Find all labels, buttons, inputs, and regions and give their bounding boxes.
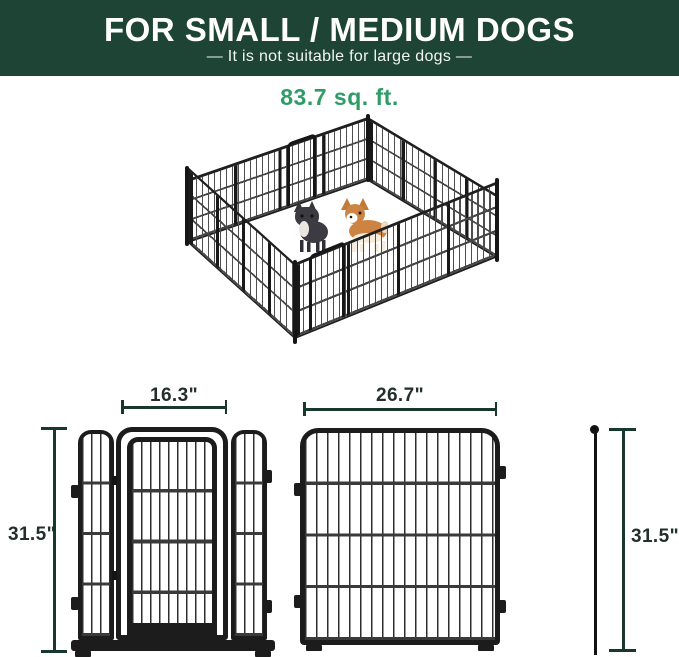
ground-stake-top	[590, 425, 599, 434]
page-title: FOR SMALL / MEDIUM DOGS	[104, 13, 575, 46]
ground-stake	[594, 430, 597, 655]
area-size-label: 83.7 sq. ft.	[0, 84, 679, 111]
connector-tab	[294, 483, 302, 496]
dimension-line	[303, 408, 497, 411]
panel-foot	[255, 651, 271, 657]
door-side-panel-right	[231, 430, 267, 640]
door-gate	[127, 437, 217, 635]
dimension-cap	[41, 427, 67, 430]
connector-tab	[264, 600, 272, 613]
regular-panel-width-label: 26.7"	[350, 385, 450, 407]
door-hinge	[112, 476, 117, 485]
dimension-cap	[41, 650, 67, 653]
panel-foot	[478, 645, 494, 651]
fence-corner-post-left	[185, 166, 189, 246]
fence-corner-post-front	[293, 260, 297, 344]
connector-tab	[294, 595, 302, 608]
connector-tab	[264, 470, 272, 483]
fence-wall-front-left	[188, 167, 296, 340]
door-hinge	[112, 571, 117, 580]
corgi-icon	[341, 198, 388, 252]
connector-tab	[498, 466, 506, 479]
fence-door-back	[287, 133, 315, 207]
fence-wall-back-right	[368, 117, 499, 260]
dimension-cap	[495, 402, 498, 416]
french-bulldog-icon	[294, 201, 328, 252]
dimension-cap	[121, 400, 124, 414]
header-banner: FOR SMALL / MEDIUM DOGS — It is not suit…	[0, 0, 679, 76]
door-panel-height-label: 31.5"	[8, 524, 50, 546]
regular-panel	[300, 428, 500, 645]
panel-foot	[306, 645, 322, 651]
dimension-line	[622, 430, 625, 651]
dimension-cap	[609, 428, 636, 431]
regular-panel-height-label: 31.5"	[631, 526, 679, 548]
connector-tab	[498, 600, 506, 613]
fence-door-front	[309, 241, 345, 332]
dimension-cap	[609, 649, 636, 652]
fence-wall-front-right	[295, 181, 499, 339]
panel-foot	[75, 651, 91, 657]
door-panel-width-label: 16.3"	[124, 385, 224, 407]
connector-tab	[71, 597, 79, 610]
door-panel	[116, 427, 228, 640]
dimension-line	[121, 406, 227, 409]
page-subtitle: — It is not suitable for large dogs —	[207, 48, 472, 66]
door-panel-base	[71, 640, 275, 651]
connector-tab	[71, 485, 79, 498]
dogs-illustration	[292, 198, 388, 254]
dimension-line	[53, 428, 56, 652]
fence-corner-post-back	[366, 114, 370, 182]
dimension-cap	[225, 400, 228, 414]
fence-wall-back-left	[188, 117, 369, 243]
fence-corner-post-right	[495, 178, 499, 262]
product-infographic: FOR SMALL / MEDIUM DOGS — It is not suit…	[0, 0, 679, 657]
dimension-cap	[303, 402, 306, 416]
door-side-panel-left	[78, 430, 114, 640]
